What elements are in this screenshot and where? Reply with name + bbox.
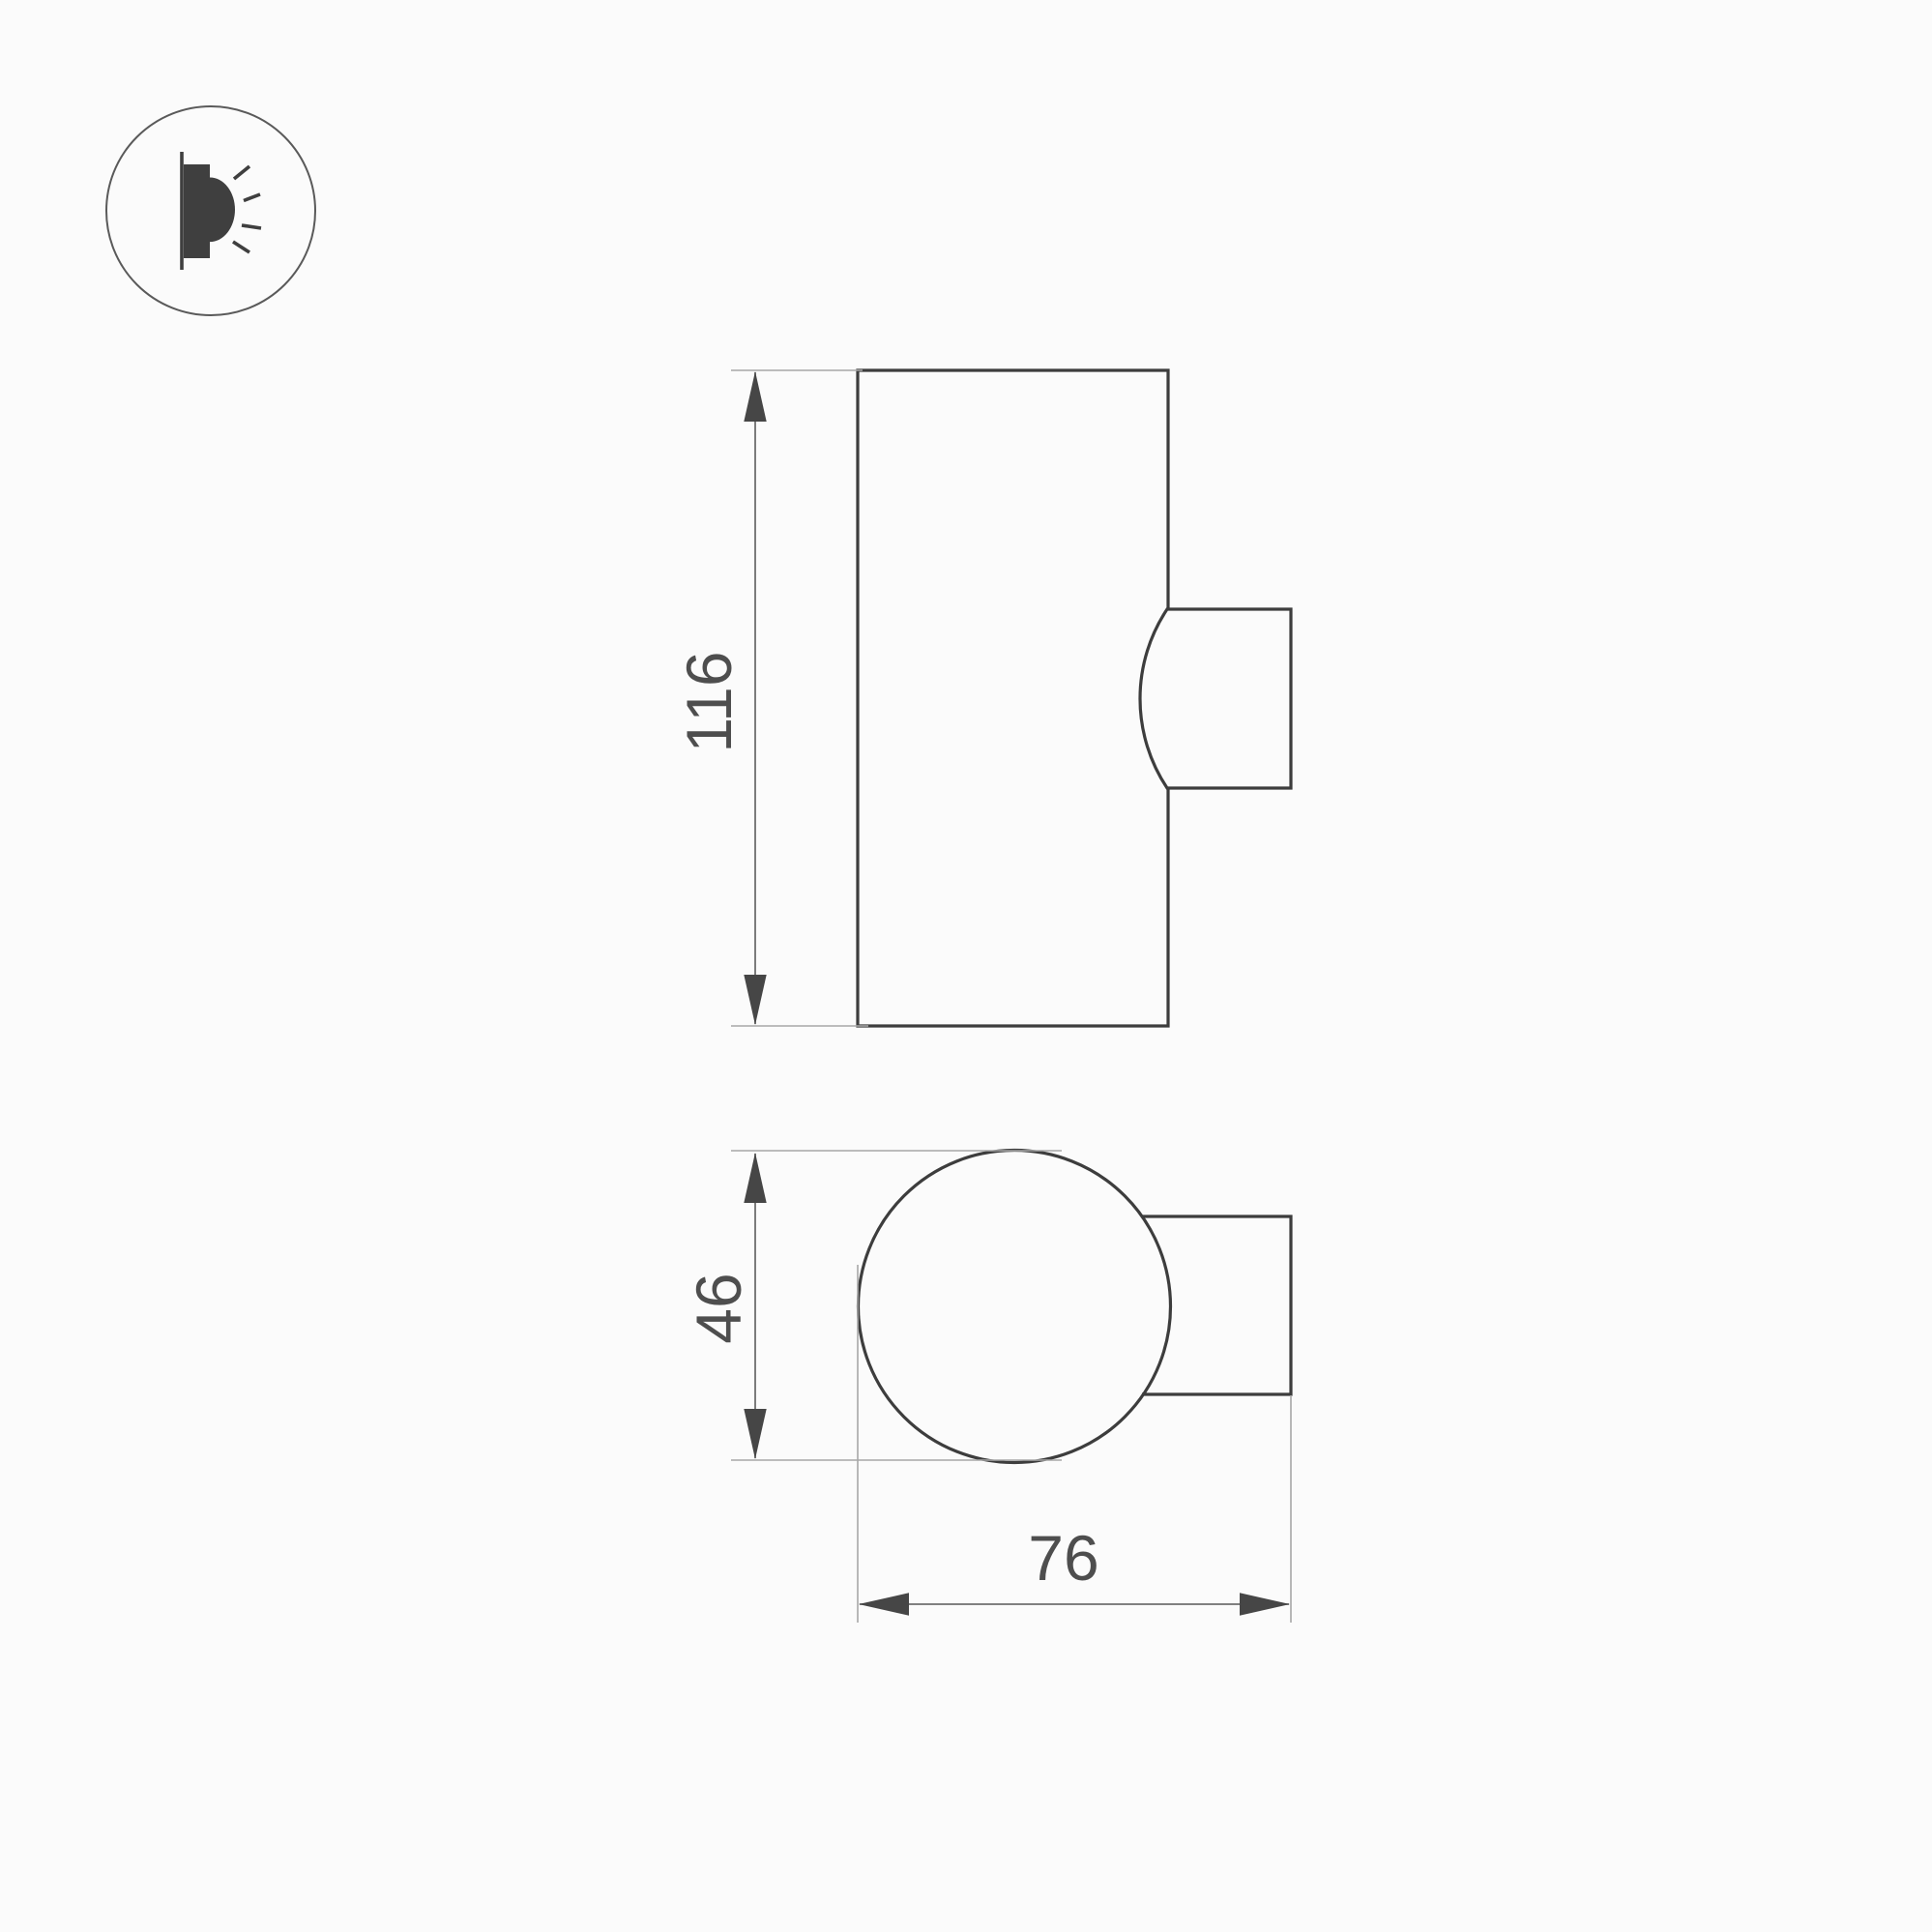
- height-dimension-label: 116: [673, 651, 745, 752]
- technical-drawing-svg: 116 46 76: [0, 0, 1932, 1932]
- front-view: [858, 370, 1291, 1026]
- arrowhead-right-icon: [1240, 1593, 1290, 1615]
- icon-light-ray: [233, 242, 249, 252]
- lamp-body-top-circle: [859, 1151, 1171, 1463]
- depth-dimension-label: 76: [1028, 1522, 1098, 1594]
- height-dimension: 116: [673, 370, 868, 1026]
- arrowhead-down-icon: [744, 1409, 766, 1459]
- mount-bracket-front: [1140, 609, 1291, 788]
- lamp-body-front-outline: [858, 370, 1168, 1026]
- icon-light-ray: [244, 194, 260, 201]
- icon-light-rays: [233, 166, 261, 252]
- top-view: [859, 1151, 1292, 1463]
- arrowhead-up-icon: [744, 1153, 766, 1203]
- mount-bracket-top: [1142, 1216, 1291, 1394]
- icon-lamp-lens: [210, 178, 235, 243]
- arrowhead-left-icon: [859, 1593, 909, 1615]
- technical-drawing-canvas: 116 46 76: [0, 0, 1932, 1932]
- icon-light-ray: [242, 225, 261, 228]
- arrowhead-up-icon: [744, 371, 766, 422]
- arrowhead-down-icon: [744, 975, 766, 1025]
- icon-lamp-body: [184, 164, 210, 258]
- diameter-dimension: 46: [683, 1151, 1062, 1460]
- icon-light-ray: [234, 166, 249, 179]
- depth-dimension: 76: [858, 1265, 1291, 1623]
- wall-lamp-icon: [106, 106, 315, 315]
- diameter-dimension-label: 46: [683, 1273, 754, 1343]
